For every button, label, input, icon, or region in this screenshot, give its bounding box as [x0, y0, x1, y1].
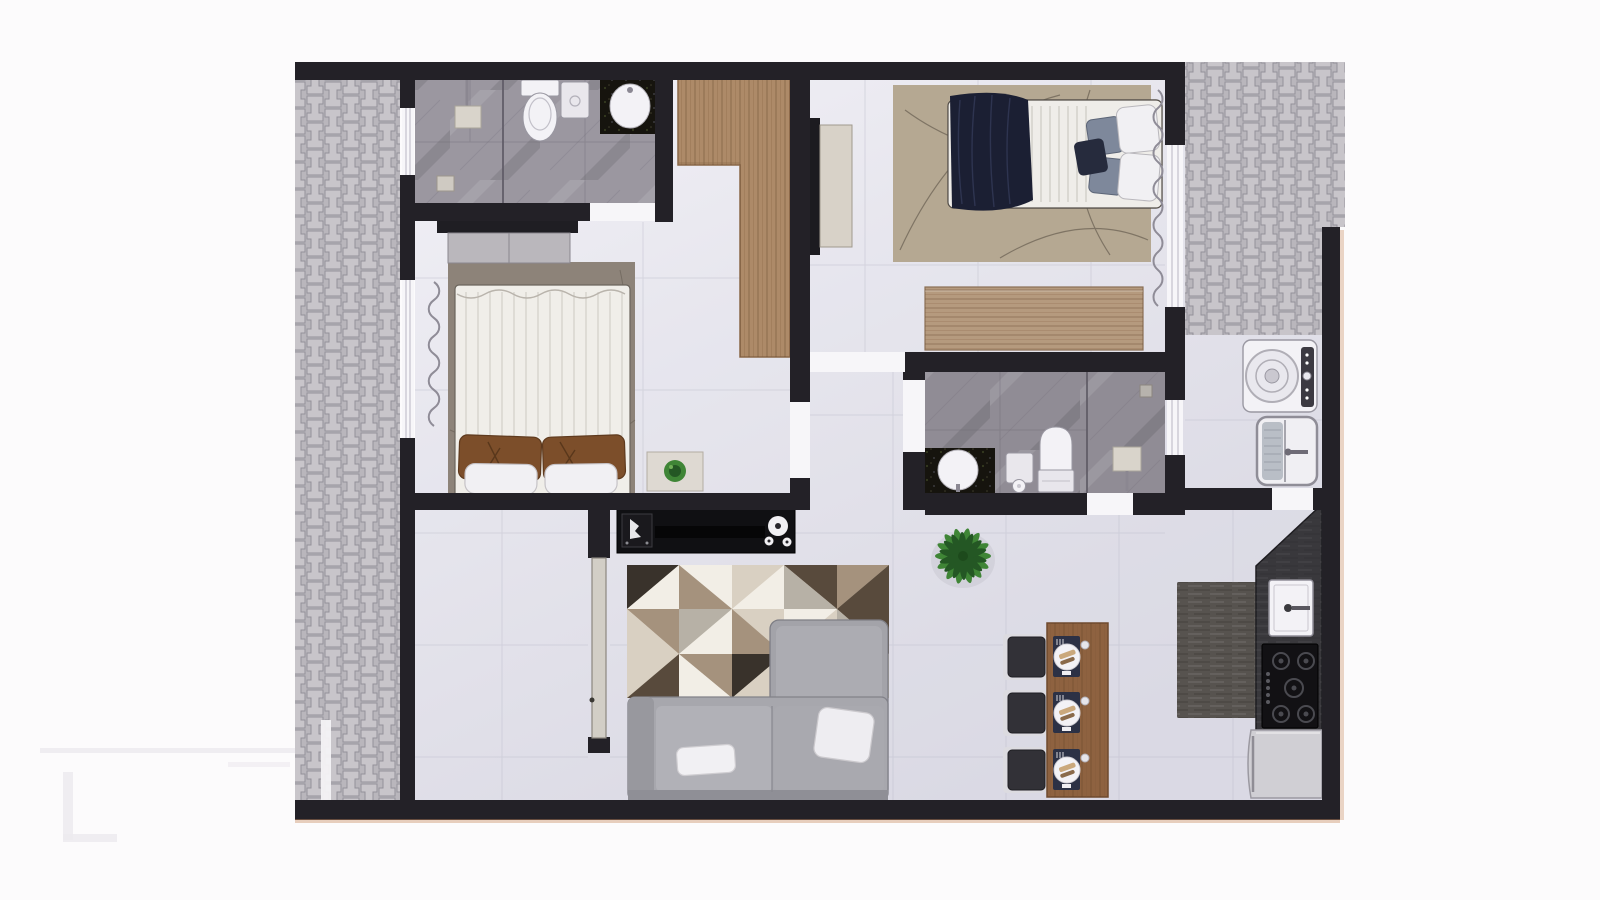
floor-drain — [437, 176, 454, 191]
dining-chairs — [1003, 634, 1047, 793]
toilet-2 — [1038, 427, 1074, 492]
wall-right — [1322, 227, 1340, 804]
paver-patio-top-right-upper — [1185, 62, 1345, 227]
dresser — [437, 221, 578, 263]
laundry-tank-sink — [1257, 417, 1317, 485]
window — [1167, 145, 1183, 307]
dining-area — [1003, 623, 1108, 797]
vanity-sink — [600, 78, 655, 134]
vanity-sink-2 — [925, 448, 995, 493]
door-threshold-bathroom2 — [903, 380, 925, 452]
refrigerator — [1248, 730, 1322, 798]
tv-console — [617, 508, 795, 553]
door-threshold-ensuite — [590, 203, 655, 221]
entry-door-leaf — [590, 558, 607, 738]
paver-patio-top-right-lower — [1185, 227, 1322, 335]
window — [1167, 400, 1183, 455]
window — [402, 280, 414, 438]
faucet-2 — [956, 484, 960, 492]
ensuite-bathroom — [415, 78, 655, 203]
door-handle — [590, 698, 595, 703]
niche-bathroom2 — [1087, 493, 1133, 515]
floor-plan-render — [0, 0, 1600, 900]
faucet — [627, 87, 633, 93]
tank-faucet — [1290, 450, 1308, 454]
bed2 — [948, 93, 1162, 211]
throw-pillow-2 — [813, 706, 875, 763]
kitchen-faucet — [1292, 606, 1310, 610]
wood-sideboard — [925, 287, 1143, 350]
shower-drain — [1140, 385, 1152, 397]
toilet — [521, 80, 559, 141]
tv-panel — [810, 118, 852, 255]
washing-machine — [1243, 340, 1317, 412]
door-threshold-bedroom2 — [810, 352, 905, 372]
bathroom-2 — [925, 372, 1165, 493]
kitchen-sink — [1269, 580, 1313, 636]
gas-cooktop — [1262, 644, 1318, 728]
paver-patio-left — [295, 78, 400, 800]
window — [402, 108, 414, 175]
door-threshold-master — [790, 402, 810, 478]
sofa-armrest — [628, 697, 654, 798]
wall-bottom — [295, 800, 1340, 820]
side-table-with-plant — [647, 452, 703, 491]
wall-cabinet — [561, 82, 589, 118]
walkway-strip — [321, 720, 331, 800]
wall-top — [295, 62, 1185, 80]
master-bed — [455, 285, 630, 497]
door-threshold-laundry — [1272, 488, 1313, 510]
throw-pillow-1 — [676, 744, 736, 776]
